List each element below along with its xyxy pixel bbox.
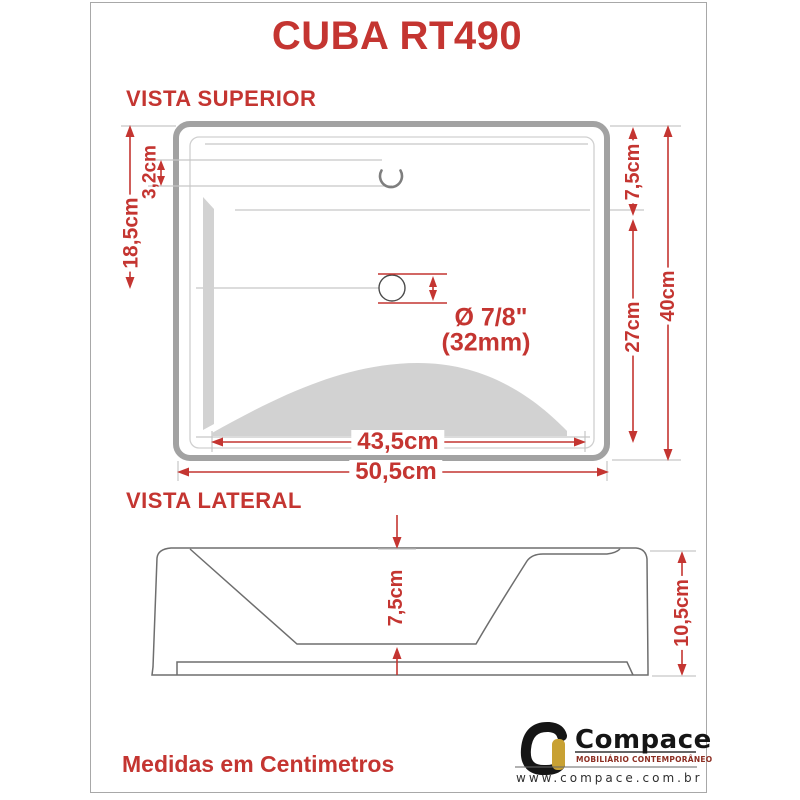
dim-label-deck-depth: 3,2cm <box>139 142 162 202</box>
dim-label-total-depth: 40cm <box>656 267 680 324</box>
units-note: Medidas em Centimetros <box>122 753 394 776</box>
page-title: CUBA RT490 <box>272 16 522 56</box>
dim-label-basin-depth: 7,5cm <box>384 567 408 630</box>
drain-diameter-label-line2: (32mm) <box>436 331 537 356</box>
top-view-label: VISTA SUPERIOR <box>126 88 316 110</box>
dim-label-top-to-basin: 7,5cm <box>621 141 645 204</box>
dim-label-total-height: 10,5cm <box>670 576 694 650</box>
drain-diameter-label-line1: Ø 7/8" <box>449 306 534 331</box>
brand-website: www.compace.com.br <box>516 772 703 784</box>
dim-label-total-width: 50,5cm <box>349 460 442 484</box>
basin-wall-shading <box>203 197 214 430</box>
brand-name: Compace <box>575 727 712 753</box>
compace-logo-gold-bar <box>552 739 565 770</box>
side-view-label: VISTA LATERAL <box>126 490 302 512</box>
dim-label-basin-length: 27cm <box>621 298 645 355</box>
drain-hole-icon <box>379 275 405 301</box>
dim-label-edge-to-drain: 18,5cm <box>119 194 144 271</box>
dim-label-inner-width: 43,5cm <box>351 430 444 454</box>
brand-tagline: MOBILIÁRIO CONTEMPORÂNEO <box>576 756 712 764</box>
technical-drawing-canvas <box>0 0 800 800</box>
